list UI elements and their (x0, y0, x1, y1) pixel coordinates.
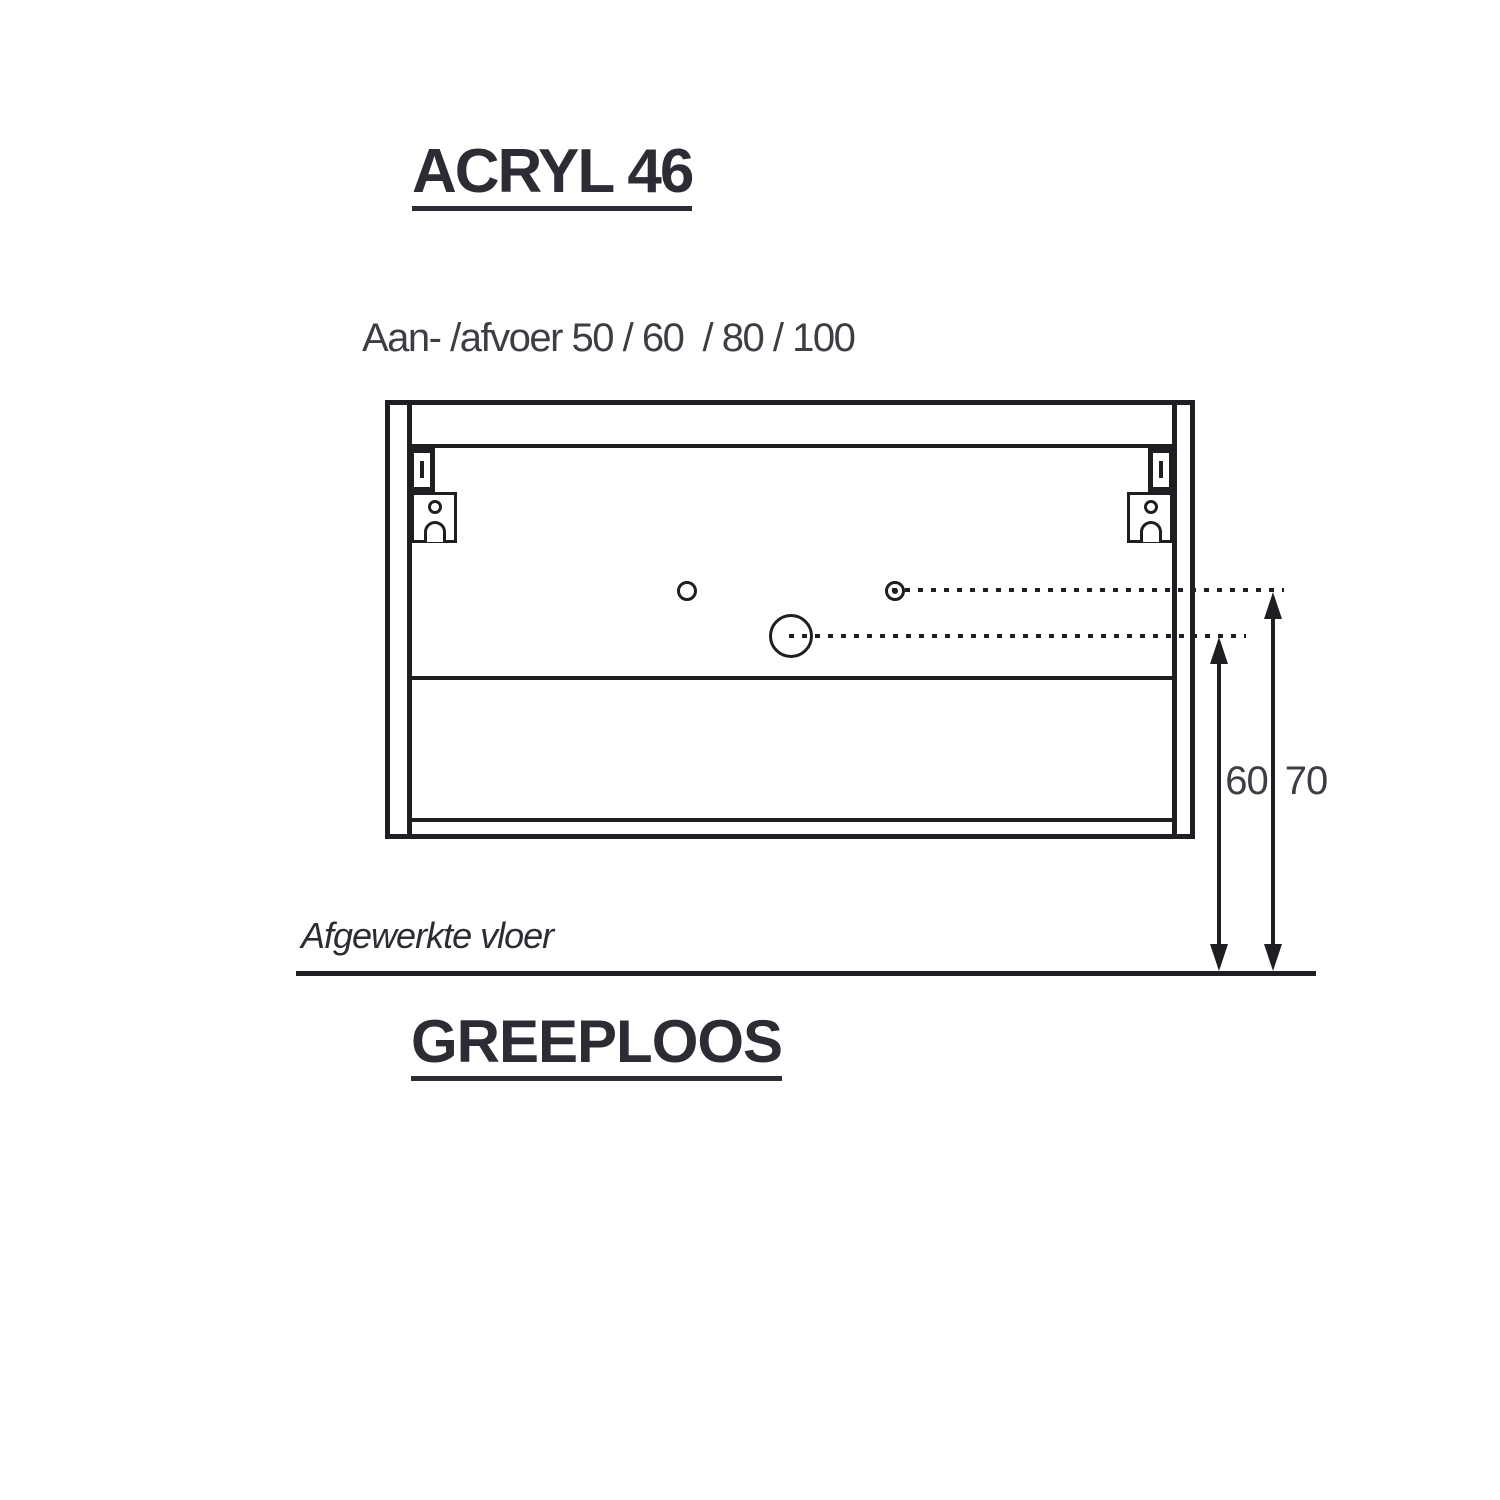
arrow-70-shaft (1271, 615, 1275, 948)
bracket-screw-hole-left (428, 500, 442, 514)
bracket-keyhole-right (1140, 521, 1162, 542)
supply-drain-note: Aan- /afvoer 50 / 60 / 80 / 100 (362, 314, 854, 362)
bracket-slot-left (420, 461, 424, 478)
reference-dotted-line-lower (789, 634, 1246, 638)
small-hole-center-mark (892, 588, 898, 594)
small-hole-left (677, 581, 697, 601)
handleless-label: GREEPLOOS (411, 1016, 782, 1081)
cabinet-top-edge (385, 400, 1195, 405)
arrow-60-shaft (1217, 660, 1221, 948)
bracket-keyhole-left (424, 521, 446, 542)
cabinet-left-outer-line (385, 400, 390, 839)
dimension-label-70: 70 (1280, 760, 1332, 802)
finished-floor-label: Afgewerkte vloer (301, 914, 553, 958)
arrow-70-bottom-head (1264, 944, 1282, 971)
inner-bottom-line (412, 818, 1172, 822)
page-title: ACRYL 46 (412, 147, 692, 211)
bracket-slot-right (1159, 461, 1163, 478)
cabinet-right-outer-line (1190, 400, 1195, 839)
bracket-screw-hole-right (1144, 500, 1158, 514)
top-rail-bottom-line (412, 444, 1172, 448)
reference-dotted-line-upper (892, 588, 1284, 592)
arrow-60-bottom-head (1210, 944, 1228, 971)
finished-floor-line (296, 971, 1316, 976)
dimension-label-60: 60 (1222, 760, 1271, 802)
cabinet-bottom-edge (385, 834, 1195, 839)
drawer-divider-line (412, 676, 1172, 680)
